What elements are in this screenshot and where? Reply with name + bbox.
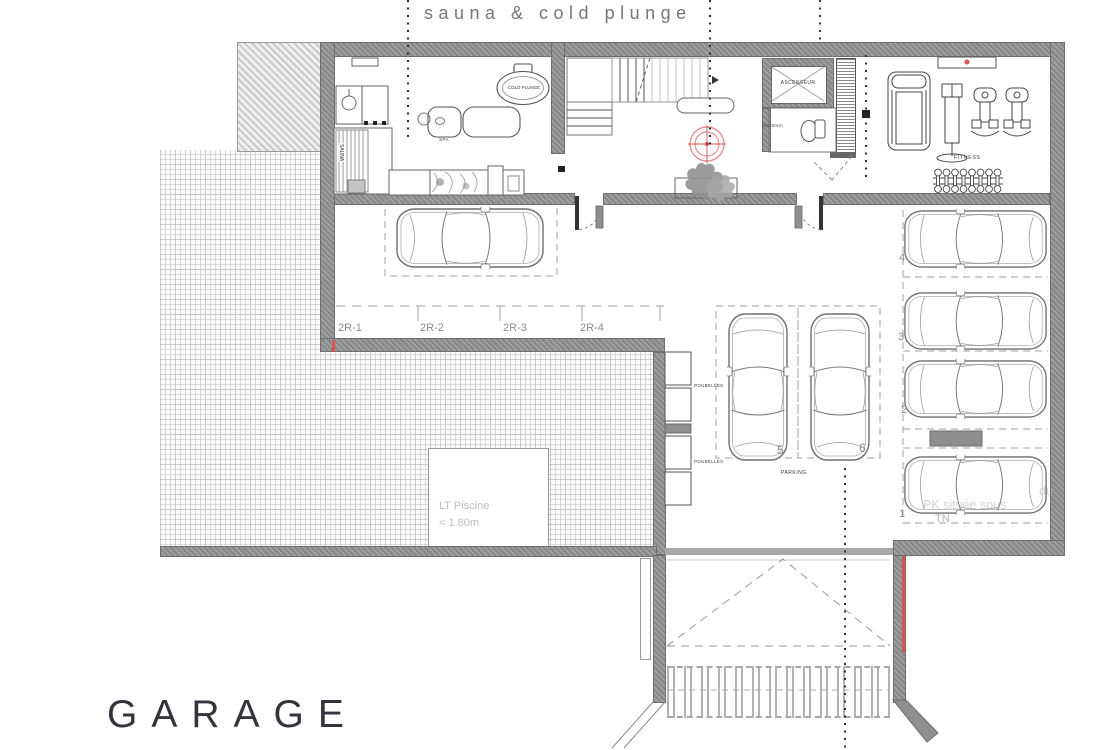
exercise-machine-icon-1 — [971, 88, 999, 136]
wc-dimension-label: 80x200cm — [762, 123, 783, 128]
stall-number-6: 6 — [859, 441, 866, 455]
garage-floor-plan: sauna & cold plunge GARAGE 2R-1 2R-2 2R-… — [0, 0, 1110, 750]
ramp-linework — [612, 559, 938, 748]
stall-label-2r4: 2R-4 — [580, 322, 604, 334]
ramp-centerline — [844, 468, 846, 750]
car-icon — [726, 314, 790, 460]
bench — [677, 98, 734, 113]
plan-title: GARAGE — [107, 693, 358, 737]
survey-watermark: du PK située sous TN — [923, 484, 1053, 526]
spa-desk — [336, 58, 388, 124]
car-icon — [397, 206, 543, 270]
grid-dotted-line-4 — [865, 55, 867, 177]
plan-linework — [0, 0, 1110, 750]
planter — [675, 163, 737, 201]
car-icon — [808, 314, 872, 460]
massage-table — [418, 107, 520, 137]
elevator-label: ASCENSEUR — [771, 80, 825, 86]
pool-depth-note: LT Piscine < 1.80m — [439, 498, 489, 531]
exercise-machine-icon-2 — [1003, 88, 1031, 136]
watermark-line1: du — [923, 484, 1053, 498]
watermark-line2: PK située sous — [923, 498, 1053, 512]
wc-room — [769, 108, 870, 180]
door-right — [795, 196, 823, 230]
grid-dotted-line-2 — [709, 0, 711, 150]
grid-dotted-line-1 — [407, 0, 409, 140]
stall-number-3: 3 — [898, 331, 904, 343]
car-icon — [905, 290, 1046, 352]
red-target-icon — [688, 125, 726, 163]
stall-number-5: 5 — [777, 443, 784, 457]
weight-bench-icon — [937, 84, 967, 162]
car-icon — [905, 358, 1046, 420]
dumbbell-rack-icon — [933, 169, 1003, 192]
pool-depth-line2: < 1.80m — [439, 515, 489, 532]
stall-number-1: 1 — [899, 508, 905, 520]
wellness-annotation: sauna & cold plunge — [424, 3, 692, 24]
car-icon — [905, 208, 1046, 270]
sauna-label: SAUNA — [338, 143, 344, 162]
fitness-label: FITNESS — [954, 155, 981, 161]
door-left — [558, 166, 603, 230]
cold-plunge-label: COLD PLUNGE — [505, 85, 543, 90]
grid-dotted-line-3 — [819, 0, 821, 44]
fitness-window — [938, 57, 996, 68]
garage-pillar — [930, 431, 982, 446]
trash-label-top: POUBELLES — [694, 383, 723, 388]
trash-label-bottom: POUBELLES — [694, 459, 723, 464]
stall-number-2: 2 — [901, 404, 907, 416]
parking-area-label: PARKING — [781, 470, 807, 476]
watermark-line3: TN — [935, 512, 1053, 526]
pool-depth-line1: LT Piscine — [439, 498, 489, 515]
direction-arrow — [712, 76, 719, 84]
spa-label: SPA — [439, 137, 449, 142]
trash-lockers — [665, 352, 691, 505]
treadmill-icon — [888, 72, 930, 150]
stall-label-2r3: 2R-3 — [503, 322, 527, 334]
stall-label-2r2: 2R-2 — [420, 322, 444, 334]
ramp-flare-right — [893, 700, 938, 742]
spa-counter — [389, 166, 524, 195]
staircase — [567, 58, 708, 135]
red-marker-dot — [965, 60, 970, 65]
stall-number-4: 4 — [899, 252, 905, 264]
stall-label-2r1: 2R-1 — [338, 322, 362, 334]
